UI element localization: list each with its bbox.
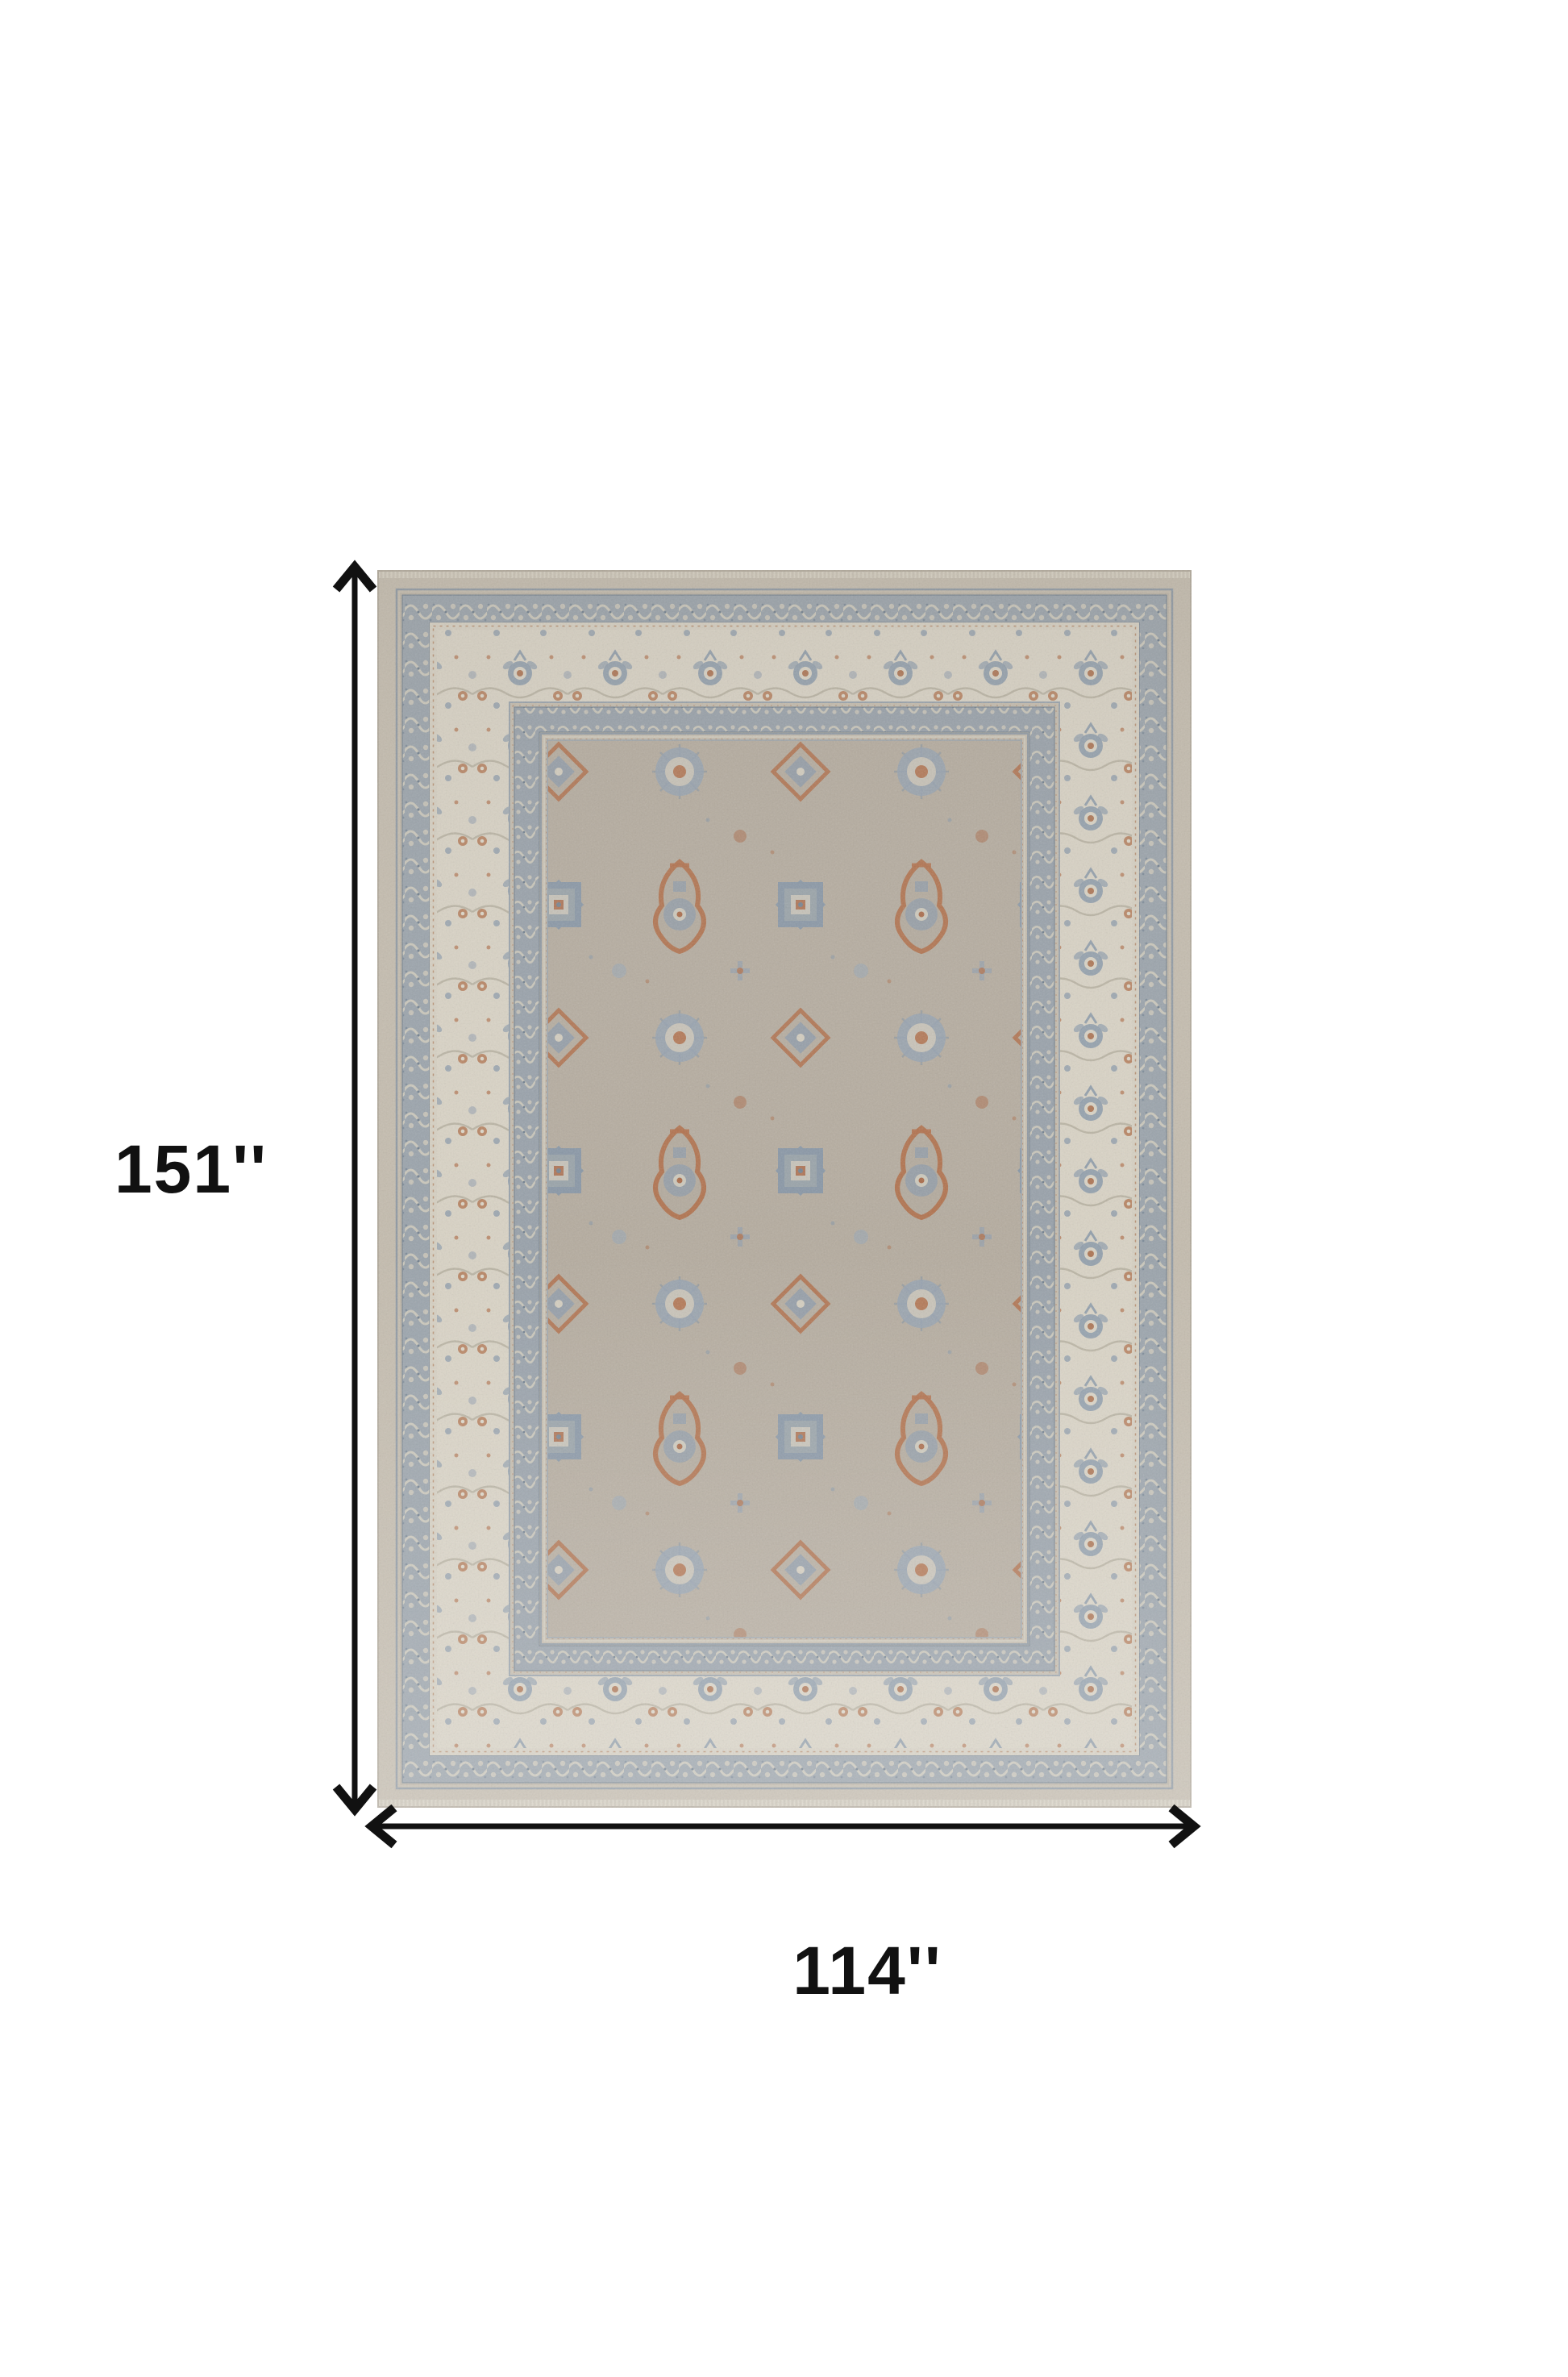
width-dimension-arrow [372, 1808, 1194, 1845]
arrow-head-up-icon [336, 567, 373, 589]
rug-graphic [377, 570, 1192, 1808]
arrow-head-down-icon [336, 1787, 373, 1809]
product-dimension-image: 151'' 114'' [0, 0, 1568, 2377]
height-dimension-label: 151'' [70, 1133, 312, 1205]
rug-photo [377, 570, 1192, 1808]
arrow-head-right-icon [1171, 1808, 1194, 1845]
width-dimension-label: 114'' [747, 1934, 988, 2007]
height-dimension-arrow [336, 567, 373, 1809]
arrow-head-left-icon [372, 1808, 394, 1845]
